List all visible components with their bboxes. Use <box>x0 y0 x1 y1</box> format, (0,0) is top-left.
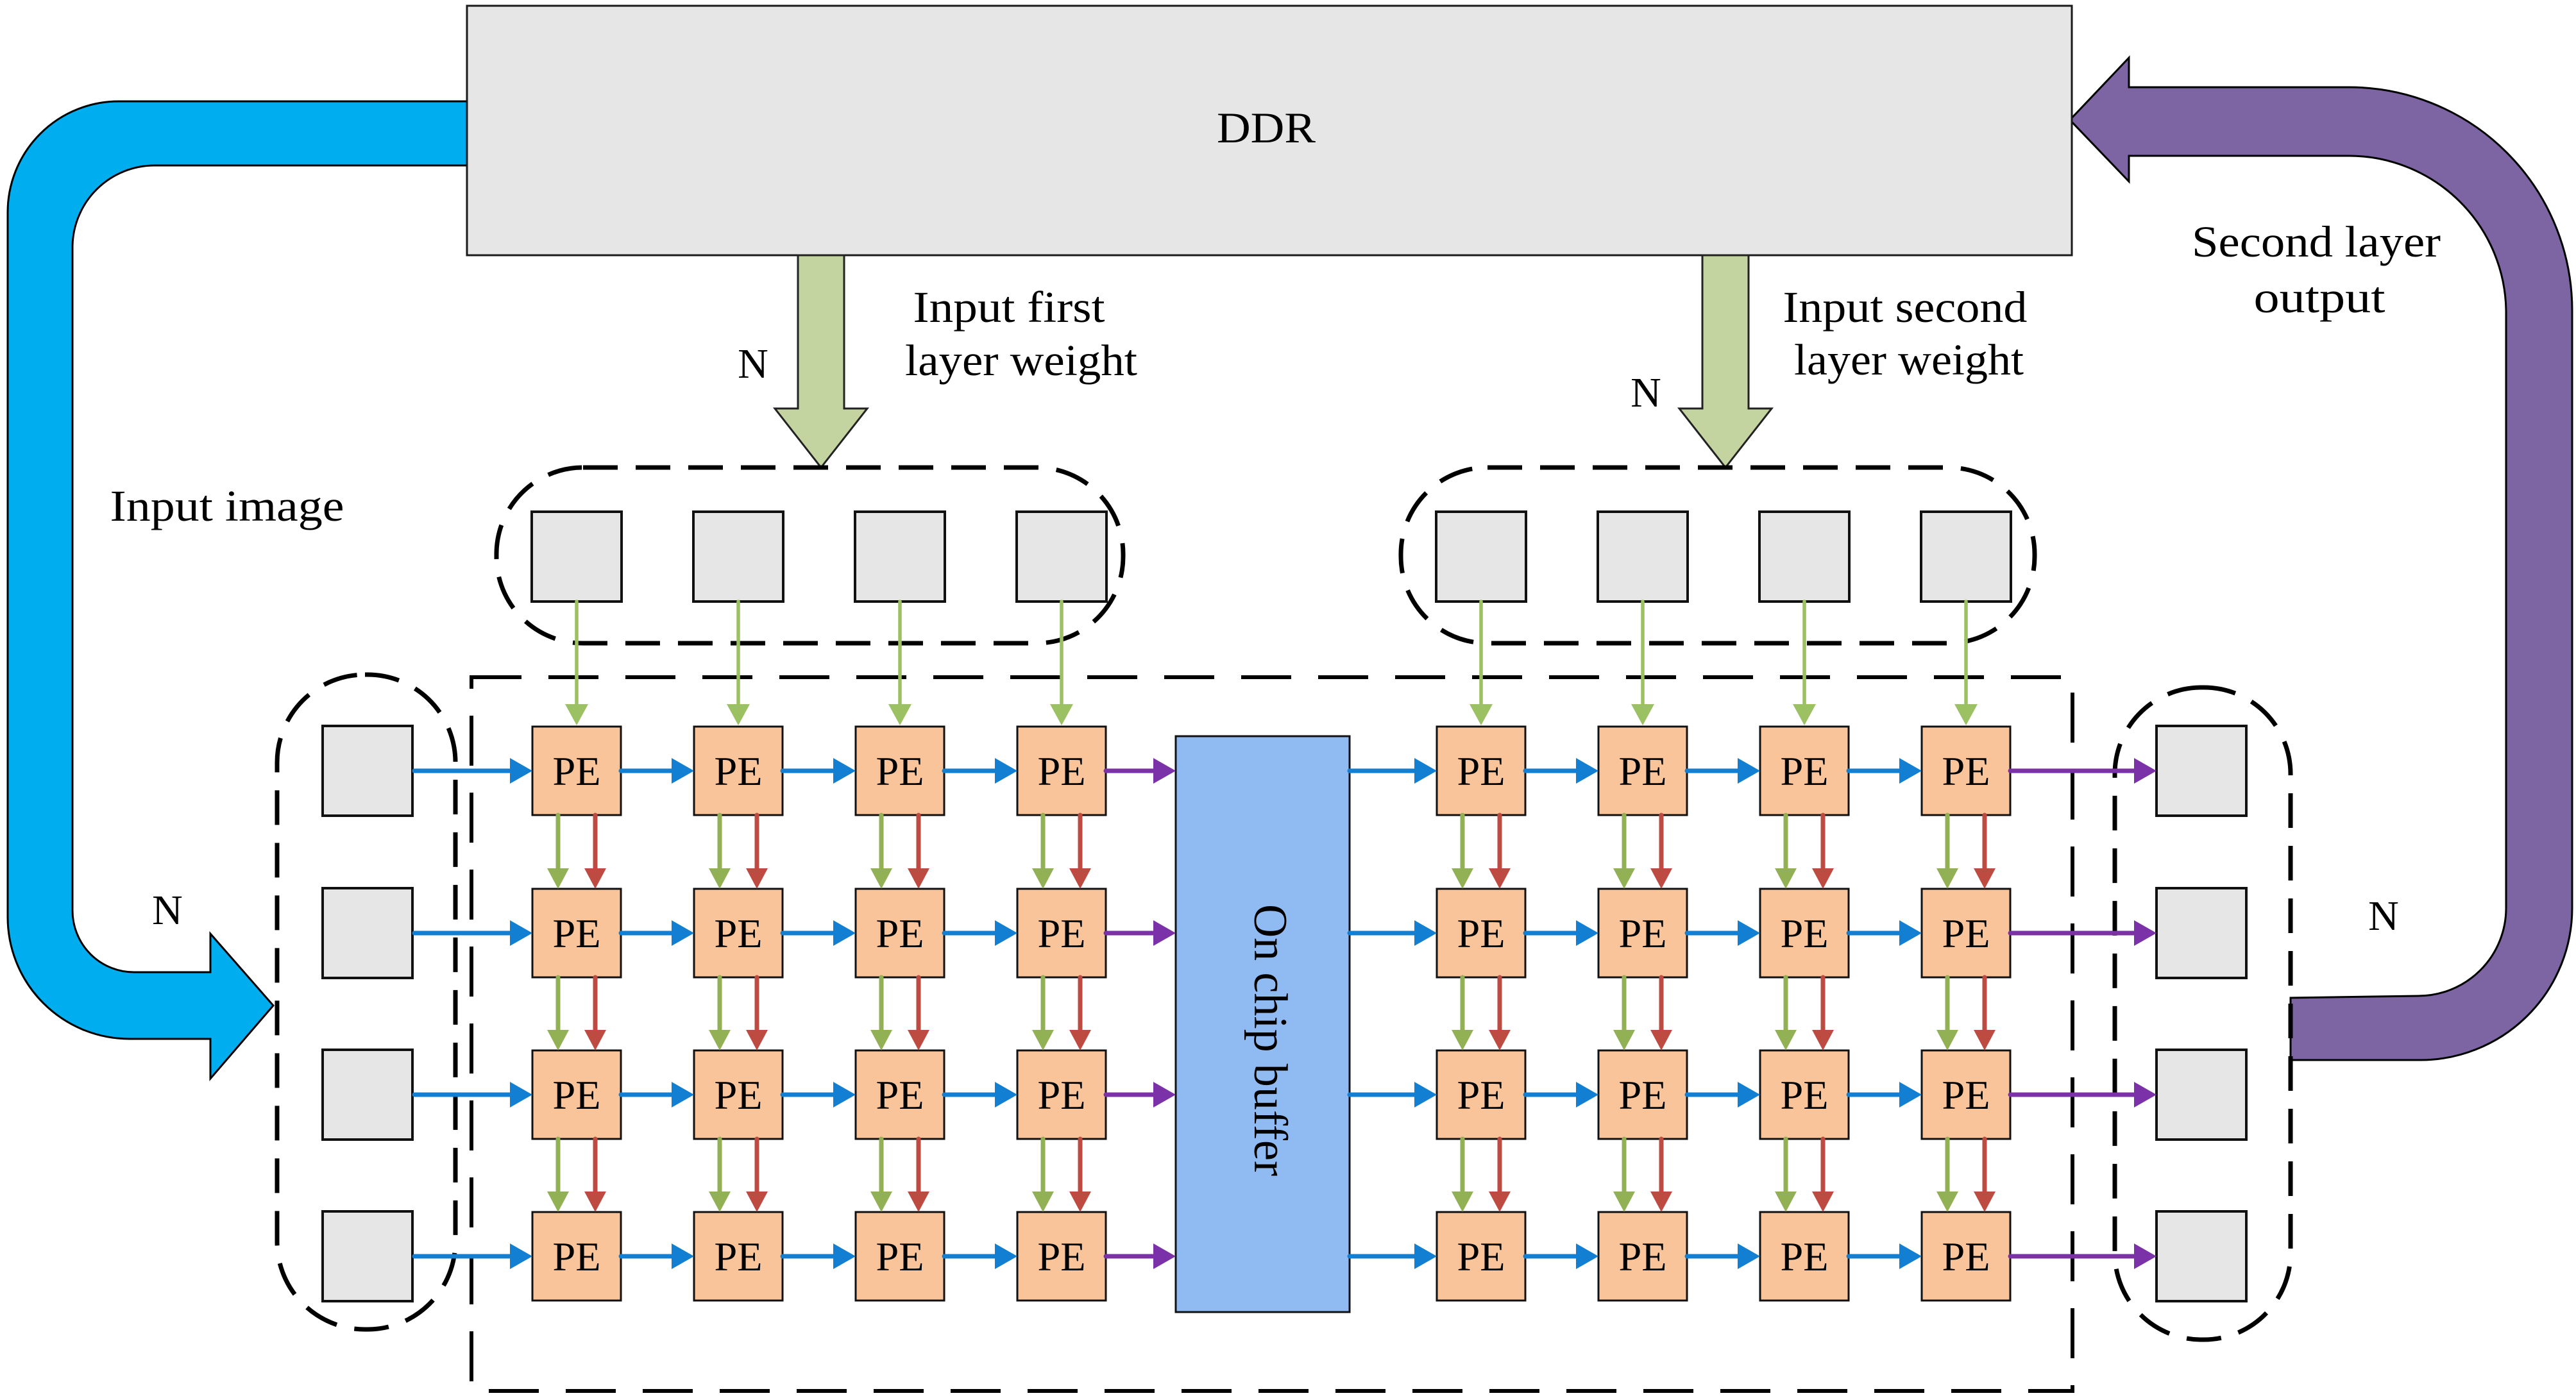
svg-text:PE: PE <box>1457 911 1505 956</box>
svg-text:PE: PE <box>715 1234 763 1279</box>
svg-text:N: N <box>2368 893 2399 939</box>
svg-text:PE: PE <box>1457 1234 1505 1279</box>
svg-text:PE: PE <box>553 1234 601 1279</box>
svg-text:PE: PE <box>1781 1072 1829 1118</box>
svg-text:DDR: DDR <box>1217 103 1316 152</box>
svg-text:N: N <box>1631 369 1661 416</box>
svg-text:PE: PE <box>876 1072 924 1118</box>
svg-text:PE: PE <box>715 748 763 794</box>
svg-text:PE: PE <box>1619 1234 1667 1279</box>
svg-text:PE: PE <box>1781 911 1829 956</box>
svg-text:PE: PE <box>1038 1234 1086 1279</box>
svg-text:PE: PE <box>553 748 601 794</box>
svg-text:PE: PE <box>1457 748 1505 794</box>
svg-text:Input second: Input second <box>1783 283 2028 332</box>
svg-text:PE: PE <box>1781 1234 1829 1279</box>
svg-text:layer weight: layer weight <box>1794 335 2024 384</box>
svg-text:On chip buffer: On chip buffer <box>1244 904 1296 1176</box>
svg-text:output: output <box>2254 273 2385 322</box>
svg-text:PE: PE <box>1038 911 1086 956</box>
svg-text:PE: PE <box>876 1234 924 1279</box>
svg-text:PE: PE <box>1457 1072 1505 1118</box>
svg-text:PE: PE <box>1942 1234 1990 1279</box>
svg-text:PE: PE <box>715 911 763 956</box>
svg-text:PE: PE <box>1942 748 1990 794</box>
svg-text:PE: PE <box>876 911 924 956</box>
svg-text:Second layer: Second layer <box>2192 217 2441 266</box>
svg-text:Input image: Input image <box>110 482 344 530</box>
svg-text:PE: PE <box>1038 1072 1086 1118</box>
svg-text:PE: PE <box>553 1072 601 1118</box>
svg-text:N: N <box>152 887 183 934</box>
svg-text:PE: PE <box>1942 1072 1990 1118</box>
svg-text:layer weight: layer weight <box>905 336 1137 385</box>
svg-text:PE: PE <box>1619 748 1667 794</box>
svg-text:Input first: Input first <box>913 283 1105 332</box>
svg-text:N: N <box>738 341 768 387</box>
svg-text:PE: PE <box>1942 911 1990 956</box>
svg-text:PE: PE <box>1781 748 1829 794</box>
svg-text:PE: PE <box>876 748 924 794</box>
svg-text:PE: PE <box>1619 1072 1667 1118</box>
svg-text:PE: PE <box>1038 748 1086 794</box>
svg-text:PE: PE <box>553 911 601 956</box>
svg-text:PE: PE <box>1619 911 1667 956</box>
svg-text:PE: PE <box>715 1072 763 1118</box>
